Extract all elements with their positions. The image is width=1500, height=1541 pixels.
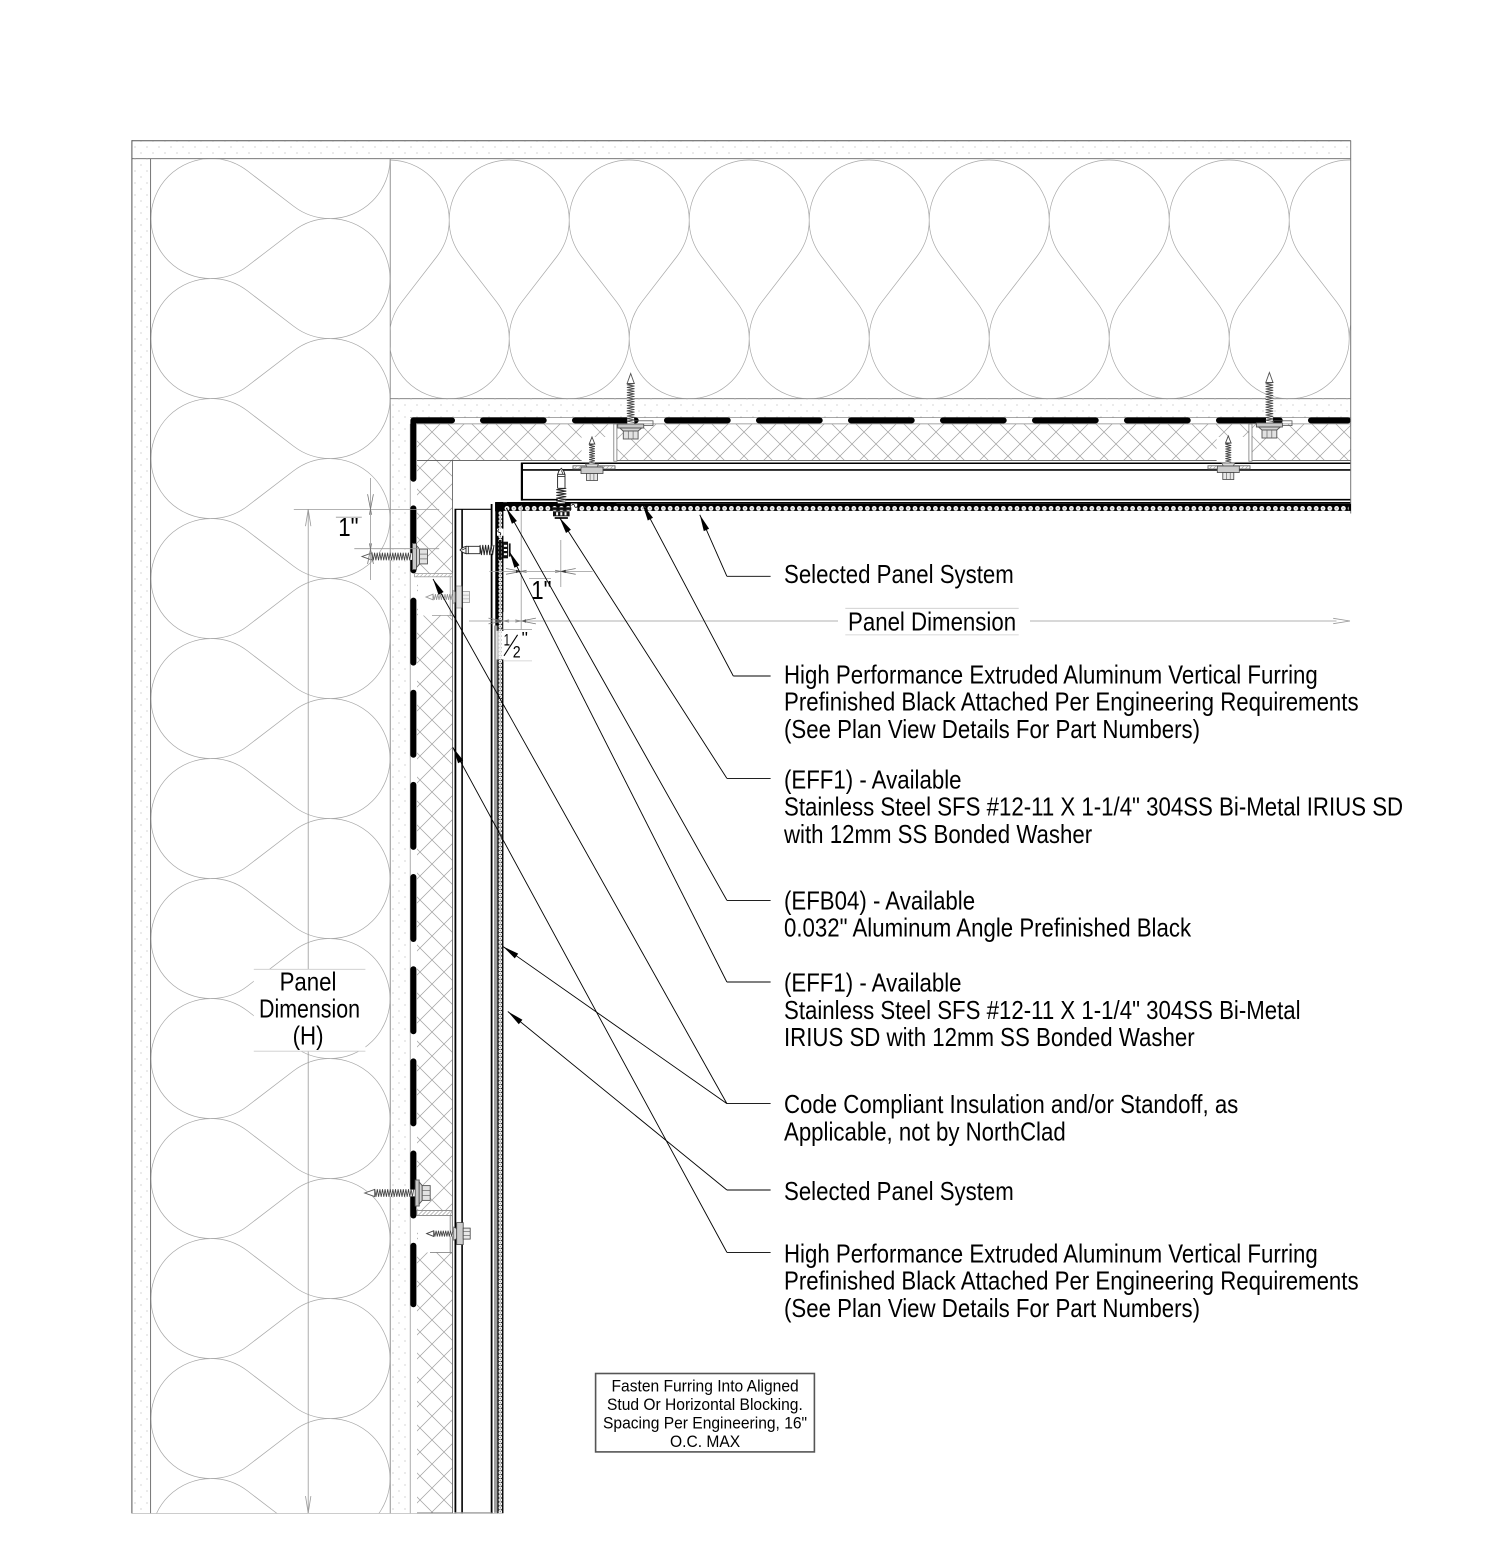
svg-text:High Performance Extruded Alum: High Performance Extruded Aluminum Verti… bbox=[784, 659, 1318, 689]
svg-text:High Performance Extruded Alum: High Performance Extruded Aluminum Verti… bbox=[784, 1238, 1318, 1268]
svg-text:Dimension: Dimension bbox=[259, 994, 360, 1024]
svg-text:(EFB04) - Available: (EFB04) - Available bbox=[784, 885, 975, 915]
svg-text:Prefinished Black Attached Per: Prefinished Black Attached Per Engineeri… bbox=[784, 687, 1359, 717]
svg-text:0.032" Aluminum Angle Prefinis: 0.032" Aluminum Angle Prefinished Black bbox=[784, 913, 1192, 943]
svg-text:(H): (H) bbox=[293, 1021, 324, 1051]
svg-text:Prefinished Black Attached Per: Prefinished Black Attached Per Engineeri… bbox=[784, 1266, 1359, 1296]
svg-text:(See Plan View Details For Par: (See Plan View Details For Part Numbers) bbox=[784, 1293, 1200, 1323]
svg-text:IRIUS SD with 12mm SS Bonded W: IRIUS SD with 12mm SS Bonded Washer bbox=[784, 1022, 1195, 1052]
svg-text:(See Plan View Details For Par: (See Plan View Details For Part Numbers) bbox=[784, 714, 1200, 744]
svg-text:Stainless Steel SFS #12-11 X 1: Stainless Steel SFS #12-11 X 1-1/4" 304S… bbox=[784, 792, 1403, 822]
svg-text:2: 2 bbox=[513, 644, 521, 662]
svg-text:Code Compliant Insulation and/: Code Compliant Insulation and/or Standof… bbox=[784, 1089, 1238, 1119]
svg-text:Stud Or Horizontal Blocking.: Stud Or Horizontal Blocking. bbox=[607, 1395, 803, 1414]
svg-text:with 12mm SS Bonded Washer: with 12mm SS Bonded Washer bbox=[783, 819, 1092, 849]
svg-text:Selected Panel System: Selected Panel System bbox=[784, 559, 1014, 589]
svg-text:(EFF1) - Available: (EFF1) - Available bbox=[784, 764, 962, 794]
svg-text:Panel: Panel bbox=[280, 967, 337, 997]
svg-text:1": 1" bbox=[338, 512, 358, 542]
svg-text:Fasten Furring Into Aligned: Fasten Furring Into Aligned bbox=[612, 1377, 799, 1396]
svg-text:Stainless Steel SFS #12-11 X 1: Stainless Steel SFS #12-11 X 1-1/4" 304S… bbox=[784, 995, 1301, 1025]
svg-text:1: 1 bbox=[504, 632, 510, 650]
svg-text:": " bbox=[522, 629, 528, 647]
svg-text:Spacing Per Engineering, 16": Spacing Per Engineering, 16" bbox=[603, 1414, 807, 1433]
svg-text:Panel Dimension: Panel Dimension bbox=[848, 607, 1016, 637]
svg-text:Selected Panel System: Selected Panel System bbox=[784, 1176, 1014, 1206]
svg-text:Applicable, not by NorthClad: Applicable, not by NorthClad bbox=[784, 1116, 1066, 1146]
svg-text:(EFF1) - Available: (EFF1) - Available bbox=[784, 967, 962, 997]
svg-text:O.C. MAX: O.C. MAX bbox=[670, 1432, 740, 1451]
